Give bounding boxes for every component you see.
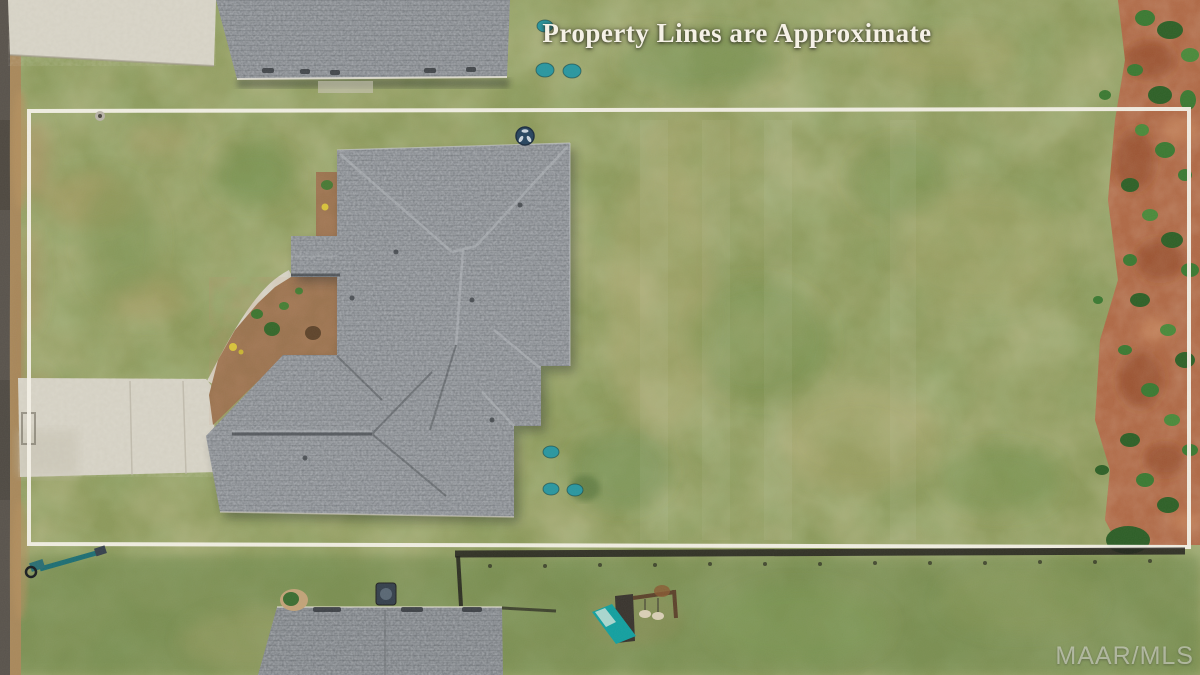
- photo-grain: [0, 0, 1200, 675]
- aerial-property-photo: Property Lines are Approximate MAAR/MLS: [0, 0, 1200, 675]
- overlay-caption: Property Lines are Approximate: [542, 18, 931, 49]
- mls-watermark: MAAR/MLS: [1055, 642, 1194, 671]
- aerial-scene: [0, 0, 1200, 675]
